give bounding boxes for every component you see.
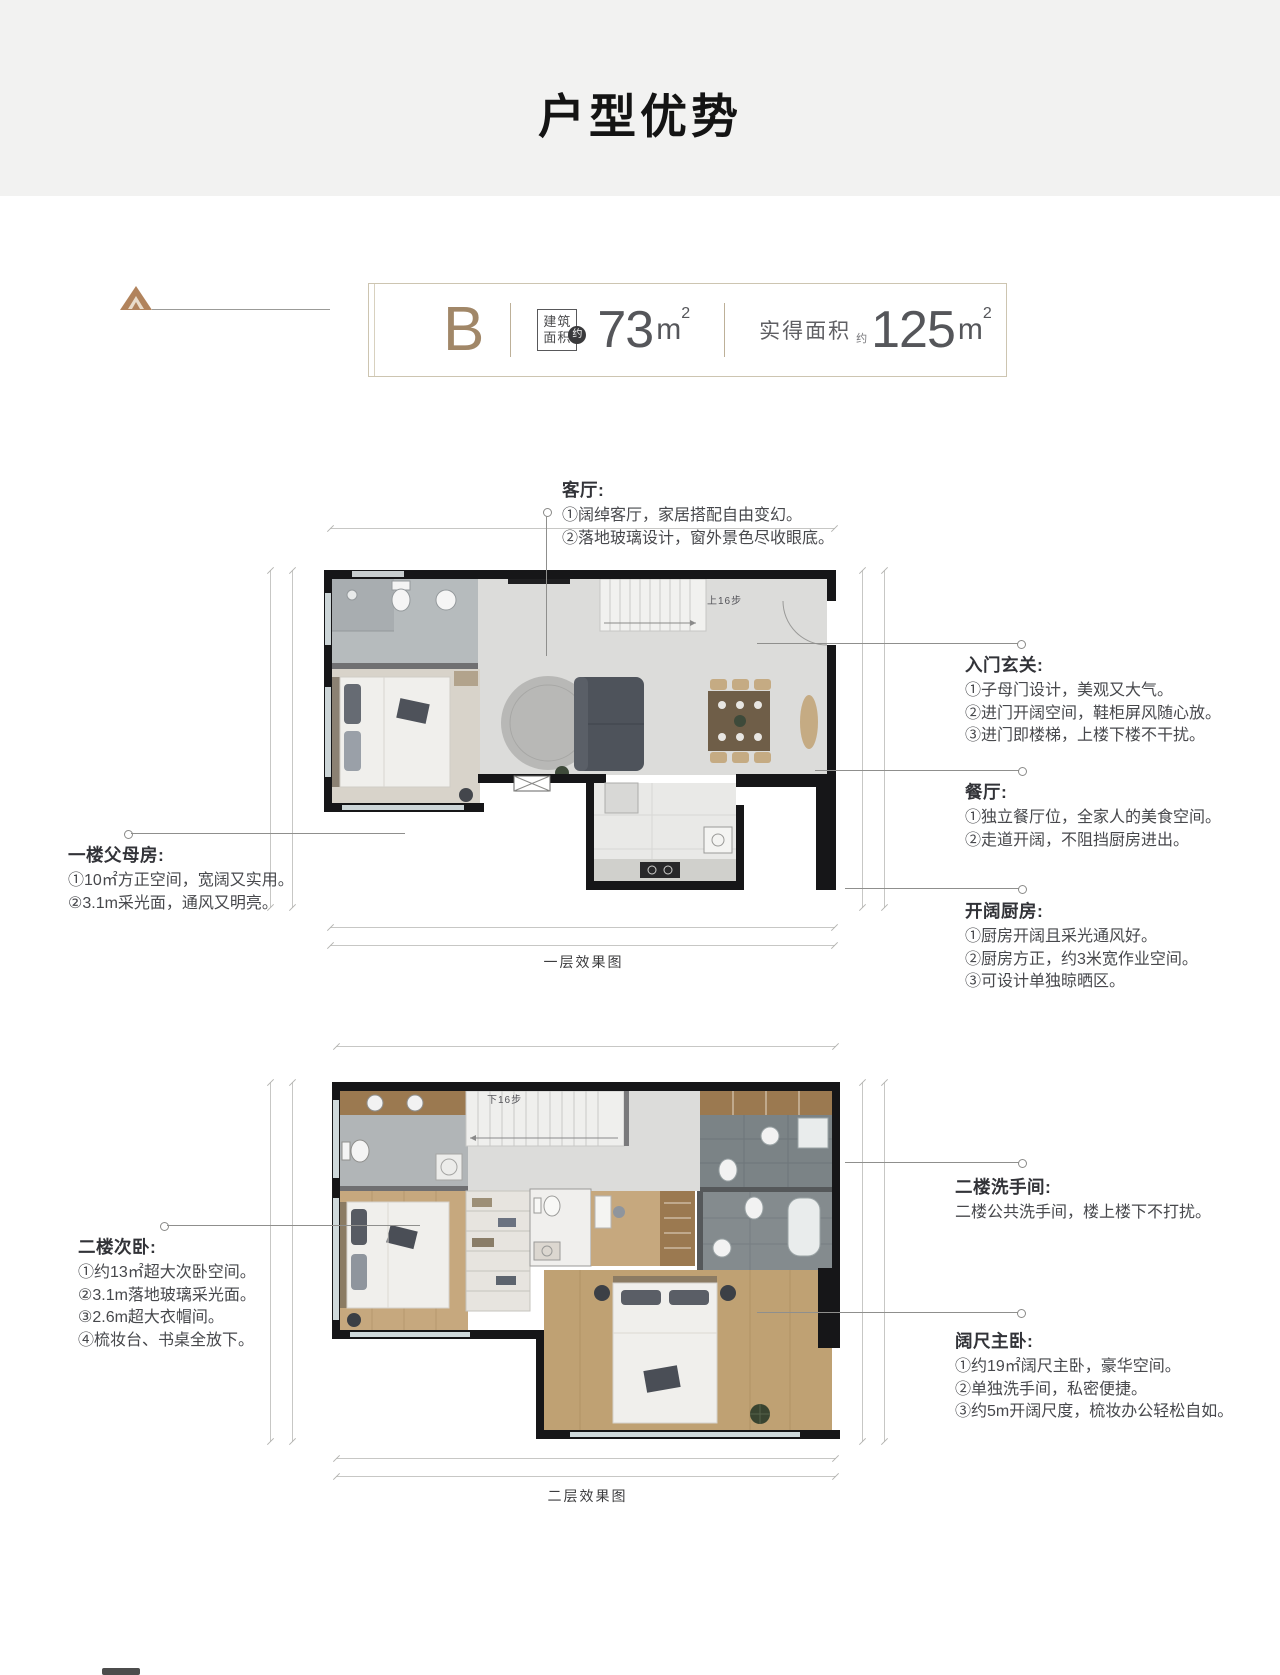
leader-dot [1018, 885, 1027, 894]
top-closet-icon [700, 1091, 832, 1115]
built-area-sup: 2 [681, 305, 690, 323]
dim-line [884, 570, 885, 908]
shower-area [332, 579, 394, 631]
vanity-counter [340, 1091, 468, 1115]
annotation-title: 阔尺主卧: [955, 1328, 1233, 1353]
floor1-plan [322, 565, 845, 908]
leader-dot [1018, 767, 1027, 776]
stool-icon [459, 788, 473, 802]
annotation-line: ④梳妆台、书桌全放下。 [78, 1330, 256, 1353]
annotation-line: ①独立餐厅位，全家人的美食空间。 [965, 807, 1221, 830]
annotation-living-room: 客厅: ①阔绰客厅，家居搭配自由变幻。 ②落地玻璃设计，窗外景色尽收眼底。 [562, 477, 834, 550]
leader-dot [543, 508, 552, 517]
floor2-stairs-label: 下16步 [487, 1091, 522, 1106]
unit-letter: B [443, 302, 484, 358]
floor2-caption: 二层效果图 [330, 1486, 845, 1506]
annotation-title: 一楼父母房: [68, 842, 294, 867]
leader-dot [1018, 1159, 1027, 1168]
actual-area-unit: m [958, 313, 983, 347]
annotation-line: ①阔绰客厅，家居搭配自由变幻。 [562, 505, 834, 528]
annotation-parents-room: 一楼父母房: ①10㎡方正空间，宽阔又实用。 ②3.1m采光面，通风又明亮。 [68, 842, 294, 915]
toilet-icon [392, 581, 410, 611]
leader-dot [160, 1222, 169, 1231]
actual-area-approx: 约 [856, 330, 867, 346]
console-table-icon [800, 695, 818, 749]
annotation-second-bathroom: 二楼洗手间: 二楼公共洗手间，楼上楼下不打扰。 [955, 1174, 1211, 1225]
approx-circle-badge: 约 [568, 326, 586, 344]
actual-area-value: 125 [871, 300, 955, 360]
annotation-line: 二楼公共洗手间，楼上楼下不打扰。 [955, 1202, 1211, 1225]
annotation-dining: 餐厅: ①独立餐厅位，全家人的美食空间。 ②走道开阔，不阻挡厨房进出。 [965, 779, 1221, 852]
leader-dot [1017, 640, 1026, 649]
annotation-line: ③2.6m超大衣帽间。 [78, 1307, 256, 1330]
sink-icon [367, 1095, 383, 1111]
built-area-label-line2: 面积 [543, 330, 571, 345]
annotation-master-bedroom: 阔尺主卧: ①约19㎡阔尺主卧，豪华空间。 ②单独洗手间，私密便捷。 ③约5m开… [955, 1328, 1233, 1424]
page-title: 户型优势 [0, 78, 1280, 147]
leader-dot [124, 830, 133, 839]
leader-line [845, 1162, 1020, 1163]
bed-icon [340, 1202, 449, 1308]
annotation-line: ①厨房开阔且采光通风好。 [965, 926, 1198, 949]
x-box-icon [514, 776, 550, 791]
badge-divider-2 [724, 303, 725, 357]
stool-icon [347, 1313, 361, 1327]
dim-line [862, 570, 863, 908]
plant-icon [750, 1404, 770, 1424]
nightstand-icon [720, 1285, 736, 1301]
annotation-line: ②落地玻璃设计，窗外景色尽收眼底。 [562, 528, 834, 551]
bed-icon [332, 677, 450, 787]
unit-badge: B 建筑 面积 约 73 m 2 实得面积 约 125 m 2 [368, 283, 1007, 377]
leader-line [757, 1312, 1019, 1313]
header-band: 户型优势 [0, 0, 1280, 196]
triangle-icon-core [132, 302, 140, 309]
annotation-title: 二楼次卧: [78, 1234, 256, 1259]
annotation-line: ②3.1m落地玻璃采光面。 [78, 1285, 256, 1308]
actual-area-sup: 2 [983, 305, 992, 323]
kitchen-sink-icon [704, 827, 732, 853]
bottom-edge-artifact [102, 1668, 140, 1675]
dining-table-icon [708, 679, 771, 763]
annotation-line: ②进门开阔空间，鞋柜屏风随心放。 [965, 703, 1221, 726]
stairs-icon [600, 579, 706, 631]
dim-line [884, 1082, 885, 1442]
floor2-plan [330, 1078, 845, 1446]
dim-line [292, 1082, 293, 1442]
annotation-line: ③进门即楼梯，上楼下楼不干扰。 [965, 725, 1221, 748]
built-area-label-line1: 建筑 [543, 314, 571, 329]
cooktop-icon [640, 862, 680, 878]
dim-line [330, 927, 835, 928]
leader-line [131, 833, 405, 834]
nightstand-icon [594, 1285, 610, 1301]
floor1-caption: 一层效果图 [322, 952, 845, 972]
annotation-title: 餐厅: [965, 779, 1221, 804]
leader-line [815, 770, 1020, 771]
sofa-icon [574, 677, 644, 771]
closet-icon [660, 1191, 695, 1266]
built-area-value: 73 [597, 300, 653, 360]
wardrobe-icon [466, 1191, 530, 1311]
annotation-line: ③可设计单独晾晒区。 [965, 971, 1198, 994]
annotation-title: 入门玄关: [965, 652, 1221, 677]
master-bed-icon [613, 1276, 717, 1423]
annotation-title: 客厅: [562, 477, 834, 502]
master-bathroom [703, 1192, 832, 1270]
annotation-second-bedroom: 二楼次卧: ①约13㎡超大次卧空间。 ②3.1m落地玻璃采光面。 ③2.6m超大… [78, 1234, 256, 1352]
annotation-line: ③约5m开阔尺度，梳妆办公轻松自如。 [955, 1401, 1233, 1424]
built-area-unit: m [656, 313, 681, 347]
built-area-label: 建筑 面积 约 [537, 309, 577, 351]
dim-line [336, 1458, 836, 1459]
annotation-kitchen: 开阔厨房: ①厨房开阔且采光通风好。 ②厨房方正，约3米宽作业空间。 ③可设计单… [965, 898, 1198, 994]
actual-area-label: 实得面积 [759, 315, 851, 345]
floor1-stairs-label: 上16步 [707, 592, 742, 607]
badge-divider [510, 303, 511, 357]
leader-dot [1017, 1309, 1026, 1318]
leader-line [757, 643, 1019, 644]
leader-line [845, 888, 1020, 889]
annotation-line: ①10㎡方正空间，宽阔又实用。 [68, 870, 294, 893]
master-bath-small [530, 1189, 591, 1266]
sink-icon [407, 1095, 423, 1111]
entry-door-gap [827, 601, 836, 645]
annotation-line: ①约19㎡阔尺主卧，豪华空间。 [955, 1356, 1233, 1379]
nightstand-icon [454, 671, 478, 686]
leader-line [546, 516, 547, 656]
dim-line [862, 1082, 863, 1442]
annotation-line: ②厨房方正，约3米宽作业空间。 [965, 949, 1198, 972]
dim-line [270, 1082, 271, 1442]
annotation-entry: 入门玄关: ①子母门设计，美观又大气。 ②进门开阔空间，鞋柜屏风随心放。 ③进门… [965, 652, 1221, 748]
annotation-line: ②3.1m采光面，通风又明亮。 [68, 893, 294, 916]
annotation-line: ②单独洗手间，私密便捷。 [955, 1379, 1233, 1402]
shower-icon [347, 590, 357, 600]
annotation-line: ①子母门设计，美观又大气。 [965, 680, 1221, 703]
dim-line [336, 1476, 836, 1477]
washer-icon [436, 1154, 462, 1180]
leader-line [167, 1225, 420, 1226]
marker-line [152, 309, 330, 310]
dim-line [330, 945, 835, 946]
sink-icon [436, 590, 456, 610]
annotation-line: ②走道开阔，不阻挡厨房进出。 [965, 830, 1221, 853]
annotation-title: 二楼洗手间: [955, 1174, 1211, 1199]
fridge-icon [605, 783, 638, 813]
annotation-line: ①约13㎡超大次卧空间。 [78, 1262, 256, 1285]
annotation-title: 开阔厨房: [965, 898, 1198, 923]
toilet-icon [342, 1140, 369, 1162]
public-bathroom [700, 1115, 832, 1187]
dim-line [336, 1046, 836, 1047]
